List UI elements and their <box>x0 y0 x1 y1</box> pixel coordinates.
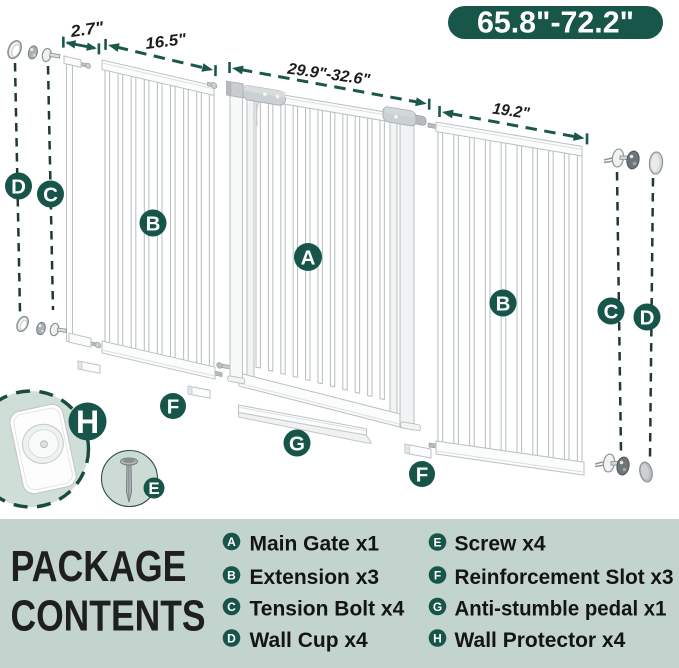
svg-text:F: F <box>416 463 429 486</box>
svg-text:C: C <box>604 300 619 323</box>
svg-text:G: G <box>289 432 305 455</box>
svg-text:F: F <box>434 568 441 582</box>
svg-text:H: H <box>76 404 99 440</box>
svg-text:F: F <box>167 395 180 418</box>
svg-text:Wall Protector x4: Wall Protector x4 <box>455 629 626 652</box>
svg-text:Main Gate x1: Main Gate x1 <box>250 533 380 556</box>
svg-text:D: D <box>640 306 655 329</box>
svg-text:Anti-stumble pedal x1: Anti-stumble pedal x1 <box>455 598 667 621</box>
svg-text:D: D <box>227 631 236 645</box>
svg-text:E: E <box>148 479 159 498</box>
svg-text:CONTENTS: CONTENTS <box>11 592 206 641</box>
svg-text:D: D <box>11 175 26 198</box>
svg-text:C: C <box>43 183 58 206</box>
svg-text:Extension x3: Extension x3 <box>250 566 380 589</box>
svg-text:Tension Bolt x4: Tension Bolt x4 <box>250 598 405 621</box>
svg-text:B: B <box>227 568 236 582</box>
svg-text:H: H <box>433 631 442 645</box>
svg-text:C: C <box>227 600 236 614</box>
svg-text:65.8"-72.2": 65.8"-72.2" <box>477 5 634 40</box>
svg-text:E: E <box>433 535 441 549</box>
svg-text:PACKAGE: PACKAGE <box>11 542 187 591</box>
svg-text:Reinforcement Slot x3: Reinforcement Slot x3 <box>455 566 674 589</box>
svg-text:B: B <box>146 212 161 235</box>
svg-text:B: B <box>496 292 511 315</box>
svg-text:G: G <box>433 600 442 614</box>
svg-text:A: A <box>301 246 316 269</box>
svg-text:Screw x4: Screw x4 <box>455 533 546 556</box>
svg-text:A: A <box>227 535 236 549</box>
svg-text:Wall Cup x4: Wall Cup x4 <box>250 629 369 652</box>
